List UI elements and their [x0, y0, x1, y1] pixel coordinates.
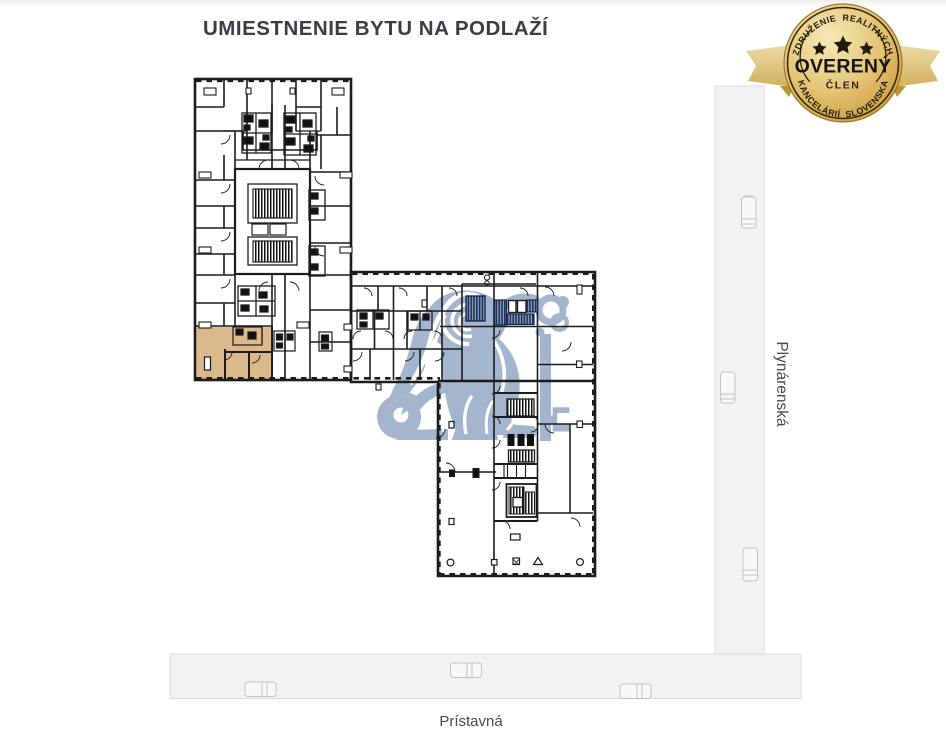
- svg-text:Plynárenská: Plynárenská: [773, 341, 790, 427]
- svg-text:ČLEN: ČLEN: [826, 79, 861, 92]
- svg-text:Prístavná: Prístavná: [439, 713, 503, 730]
- svg-text:OVERENÝ: OVERENÝ: [795, 54, 892, 78]
- svg-text:UMIESTNENIE BYTU NA PODLAŽÍ: UMIESTNENIE BYTU NA PODLAŽÍ: [203, 16, 549, 40]
